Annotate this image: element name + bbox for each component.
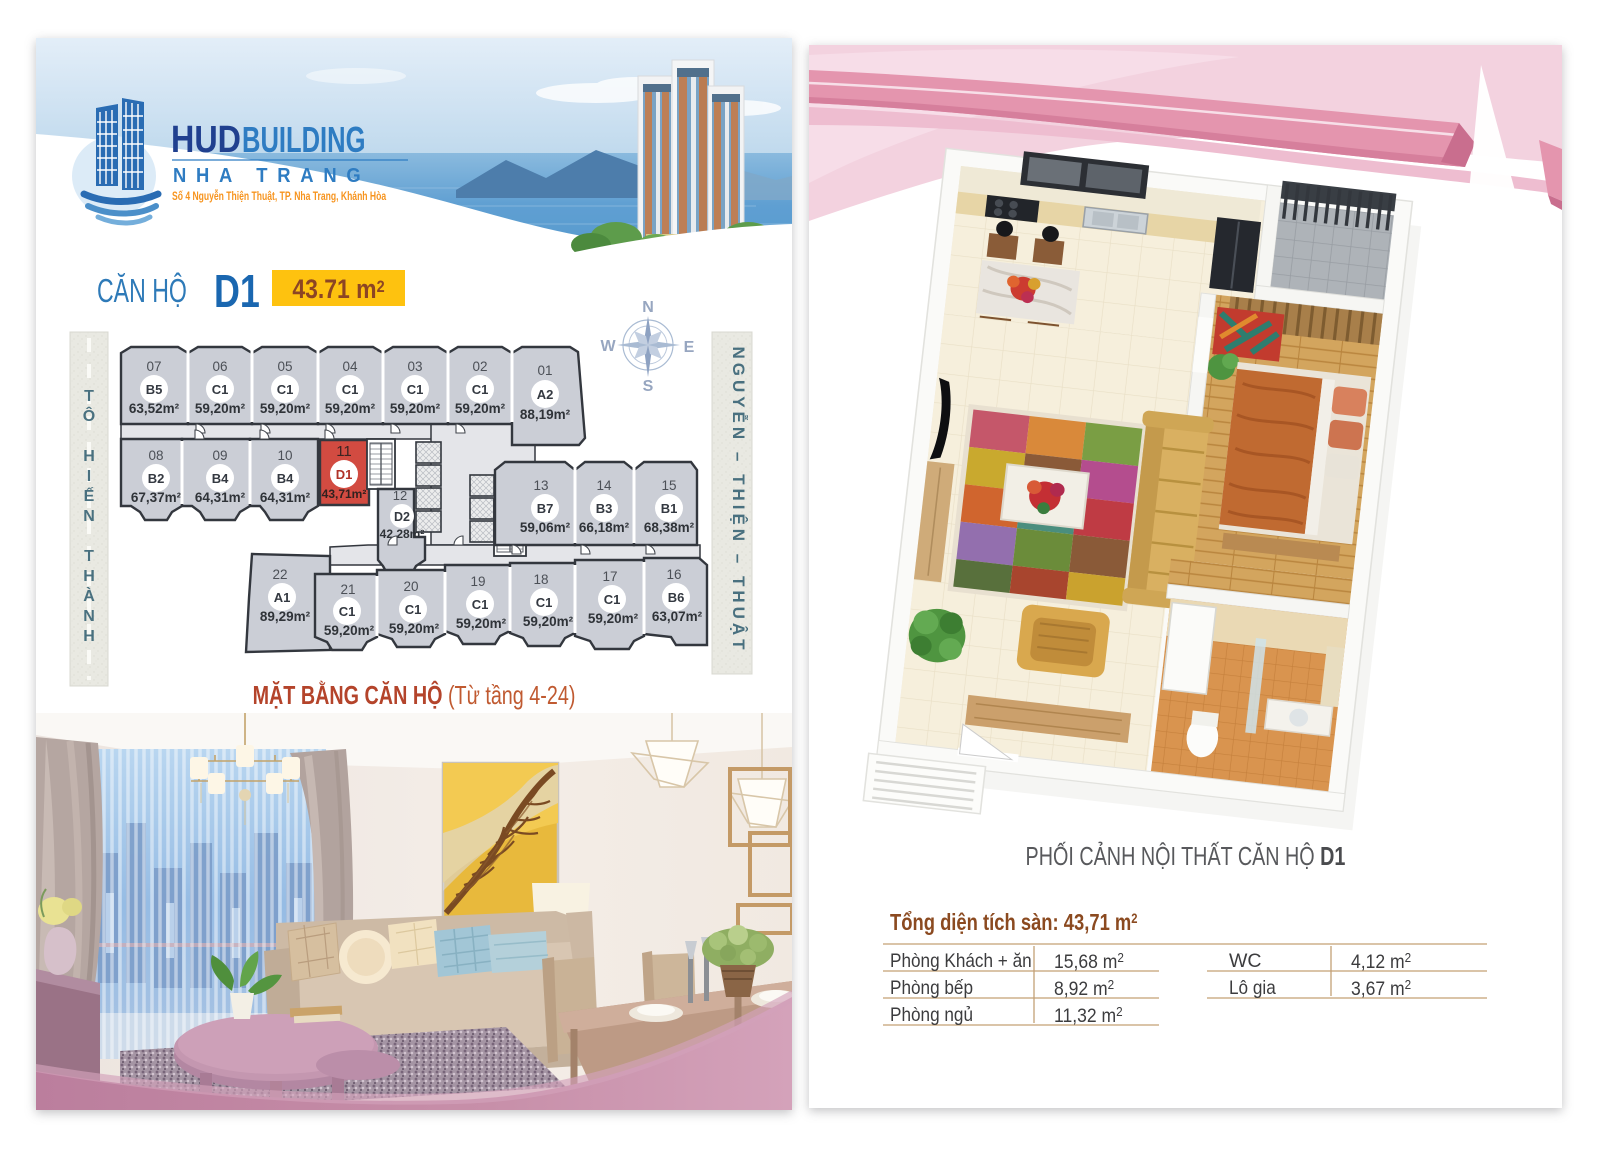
svg-text:E: E: [684, 339, 695, 356]
svg-text:C1: C1: [339, 604, 356, 619]
svg-text:59,20m²: 59,20m²: [389, 621, 440, 636]
svg-text:59,20m²: 59,20m²: [195, 401, 246, 416]
svg-text:B7: B7: [537, 501, 554, 516]
svg-text:59,20m²: 59,20m²: [260, 401, 311, 416]
svg-text:03: 03: [407, 359, 422, 374]
svg-text:D2: D2: [394, 510, 410, 524]
svg-text:13: 13: [533, 478, 548, 493]
svg-text:A1: A1: [274, 590, 291, 605]
svg-text:02: 02: [472, 359, 487, 374]
svg-text:59,06m²: 59,06m²: [520, 520, 571, 535]
svg-text:09: 09: [212, 448, 227, 463]
svg-text:N: N: [642, 299, 654, 316]
svg-text:19: 19: [470, 574, 485, 589]
svg-text:C1: C1: [472, 597, 489, 612]
svg-text:B6: B6: [668, 590, 685, 605]
svg-text:16: 16: [666, 567, 681, 582]
svg-text:20: 20: [403, 579, 418, 594]
svg-text:C1: C1: [536, 595, 553, 610]
svg-text:B1: B1: [661, 501, 678, 516]
svg-text:11: 11: [336, 443, 352, 460]
svg-text:B4: B4: [277, 471, 294, 486]
svg-text:C1: C1: [277, 382, 294, 397]
svg-text:14: 14: [596, 478, 612, 493]
svg-text:59,20m²: 59,20m²: [455, 401, 506, 416]
svg-text:59,20m²: 59,20m²: [390, 401, 441, 416]
svg-text:66,18m²: 66,18m²: [579, 520, 630, 535]
svg-text:59,20m²: 59,20m²: [456, 616, 507, 631]
svg-text:59,20m²: 59,20m²: [523, 614, 574, 629]
svg-text:08: 08: [148, 448, 163, 463]
svg-text:06: 06: [212, 359, 227, 374]
svg-text:42,28m²: 42,28m²: [380, 527, 425, 541]
svg-text:59,20m²: 59,20m²: [324, 623, 375, 638]
svg-text:18: 18: [533, 572, 548, 587]
svg-text:A2: A2: [537, 387, 554, 402]
svg-text:04: 04: [342, 359, 358, 374]
svg-text:59,20m²: 59,20m²: [325, 401, 376, 416]
svg-text:01: 01: [537, 363, 552, 378]
svg-text:B5: B5: [146, 382, 163, 397]
svg-text:15: 15: [661, 478, 676, 493]
svg-text:05: 05: [277, 359, 292, 374]
svg-text:12: 12: [393, 488, 407, 503]
svg-text:63,52m²: 63,52m²: [129, 401, 180, 416]
svg-text:B4: B4: [212, 471, 229, 486]
svg-text:NGUYỄN – THIỆN – THUẬT: NGUYỄN – THIỆN – THUẬT: [729, 346, 748, 653]
svg-text:C1: C1: [212, 382, 229, 397]
svg-text:07: 07: [146, 359, 161, 374]
svg-text:W: W: [600, 338, 616, 355]
svg-text:S: S: [643, 378, 654, 395]
svg-text:67,37m²: 67,37m²: [131, 490, 182, 505]
svg-text:68,38m²: 68,38m²: [644, 520, 695, 535]
svg-text:17: 17: [602, 569, 617, 584]
svg-text:59,20m²: 59,20m²: [588, 611, 639, 626]
svg-text:89,29m²: 89,29m²: [260, 609, 311, 624]
svg-text:C1: C1: [604, 592, 621, 607]
svg-text:22: 22: [272, 567, 287, 582]
svg-text:64,31m²: 64,31m²: [260, 490, 311, 505]
svg-text:D1: D1: [336, 467, 353, 482]
svg-text:C1: C1: [407, 382, 424, 397]
svg-text:64,31m²: 64,31m²: [195, 490, 246, 505]
svg-text:88,19m²: 88,19m²: [520, 407, 571, 422]
svg-text:C1: C1: [405, 602, 422, 617]
svg-text:10: 10: [277, 448, 292, 463]
svg-text:TÔ HIẾN THÀNH: TÔ HIẾN THÀNH: [81, 388, 98, 648]
svg-text:B2: B2: [148, 471, 165, 486]
svg-text:43,71m²: 43,71m²: [322, 487, 367, 501]
svg-text:63,07m²: 63,07m²: [652, 609, 703, 624]
svg-text:21: 21: [340, 582, 355, 597]
svg-text:B3: B3: [596, 501, 613, 516]
svg-text:C1: C1: [342, 382, 359, 397]
svg-text:C1: C1: [472, 382, 489, 397]
